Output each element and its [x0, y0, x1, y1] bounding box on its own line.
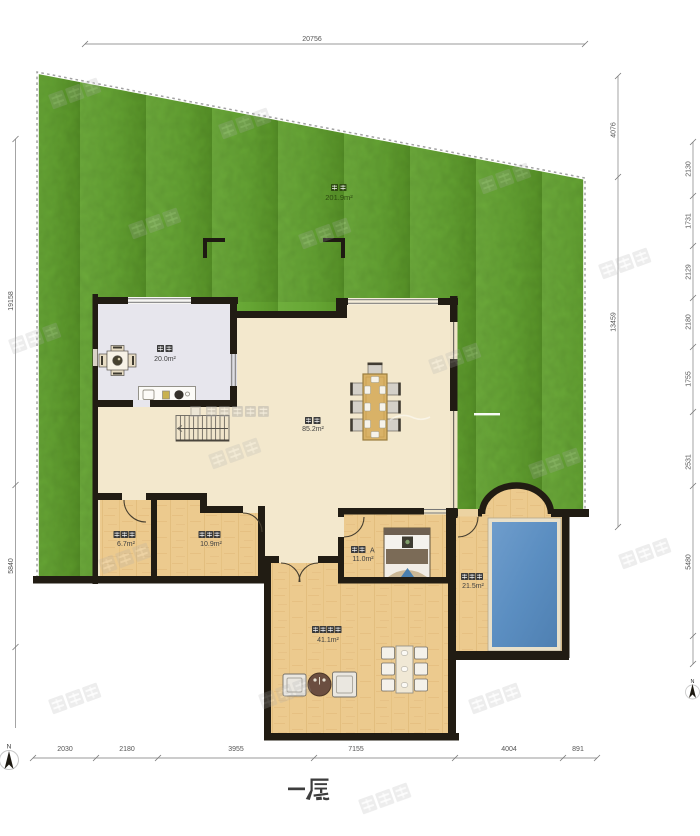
- svg-text:3955: 3955: [228, 746, 244, 753]
- svg-text:11.0m²: 11.0m²: [352, 556, 374, 563]
- svg-text:1731: 1731: [686, 213, 693, 229]
- svg-text:6.7m²: 6.7m²: [117, 541, 136, 548]
- svg-text:1755: 1755: [686, 371, 693, 387]
- svg-text:201.9m²: 201.9m²: [325, 193, 353, 202]
- svg-text:2130: 2130: [686, 161, 693, 177]
- svg-text:891: 891: [572, 746, 584, 753]
- svg-text:2030: 2030: [57, 746, 73, 753]
- svg-text:19158: 19158: [8, 291, 15, 311]
- svg-text:5480: 5480: [686, 554, 693, 570]
- svg-text:13459: 13459: [611, 312, 618, 332]
- svg-text:7155: 7155: [348, 746, 364, 753]
- svg-text:2180: 2180: [119, 746, 135, 753]
- svg-text:N: N: [7, 744, 12, 751]
- svg-text:2180: 2180: [686, 314, 693, 330]
- svg-text:20756: 20756: [302, 36, 322, 43]
- svg-text:10.9m²: 10.9m²: [200, 541, 222, 548]
- svg-text:A: A: [370, 548, 375, 555]
- svg-text:20.0m²: 20.0m²: [154, 356, 176, 363]
- svg-text:21.5m²: 21.5m²: [462, 583, 484, 590]
- svg-text:85.2m²: 85.2m²: [302, 426, 324, 433]
- svg-text:4004: 4004: [501, 746, 517, 753]
- svg-text:5840: 5840: [8, 558, 15, 574]
- svg-text:2129: 2129: [686, 264, 693, 280]
- svg-text:4076: 4076: [611, 122, 618, 138]
- svg-text:41.1m²: 41.1m²: [317, 637, 339, 644]
- svg-text:2531: 2531: [686, 454, 693, 470]
